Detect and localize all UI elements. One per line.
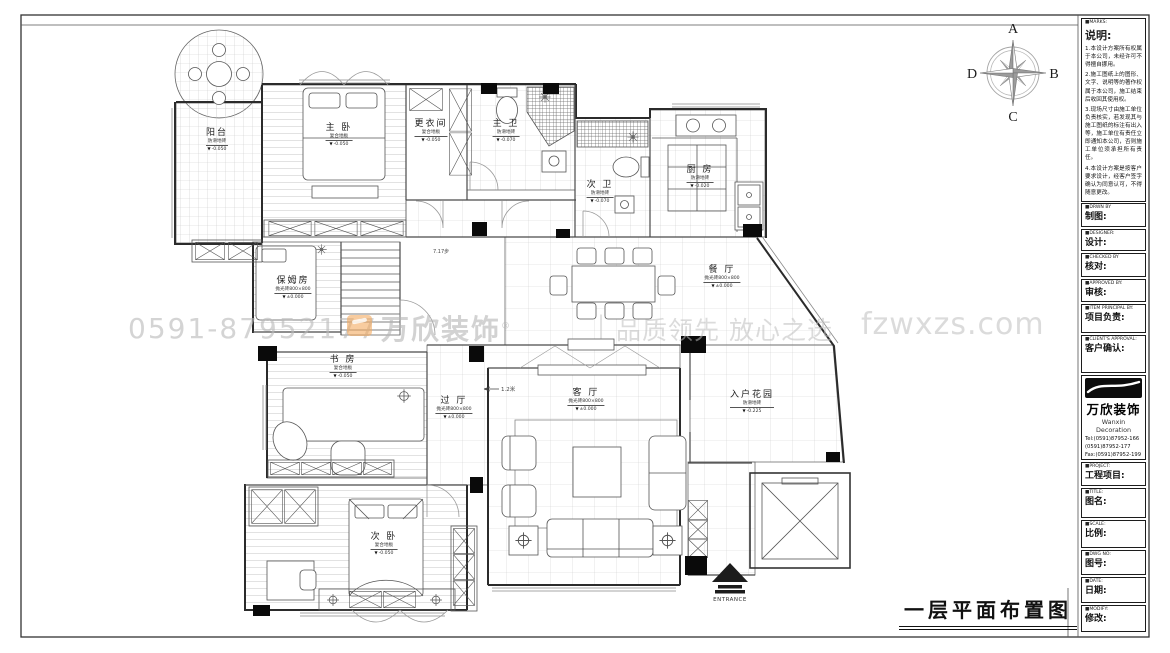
company-block: 万欣装饰 Wanxin Decoration Tel:(0591)87952-1…	[1081, 375, 1146, 460]
titleblock-principal: ■ITEM PRINCIPAL BY: 项目负责:	[1081, 304, 1146, 333]
room-label-kitchen: 厨 房 防滑地砖 ▼-0.020	[687, 165, 714, 190]
titleblock-modify: ■MODIFY: 修改:	[1081, 605, 1146, 632]
company-brand-en: Wanxin Decoration	[1085, 418, 1142, 434]
compass-letter-n: A	[1008, 22, 1019, 37]
elevator	[750, 473, 850, 568]
room-label-secondary-bath: 次 卫 防滑地砖 ▼-0.070	[587, 180, 614, 205]
titleblock-designer: ■DESIGNER: 设计:	[1081, 229, 1146, 251]
elevation-marker: ▼	[497, 137, 500, 142]
room-label-hall: 过 厅 抛光砖800×800 ▼±0.000	[435, 396, 472, 421]
company-web: Web:WWW.fzwxzs.com	[1085, 459, 1142, 460]
room-label-master-bedroom: 主 卧 复合地板 ▼-0.050	[326, 123, 353, 148]
room-label-entry-garden: 入户花园 防滑地砖 ▼-0.225	[730, 390, 774, 415]
elevation-marker: ▼	[691, 183, 694, 188]
elevation-marker: ▼	[375, 550, 378, 555]
titleblock-dwg-no: ■DWG NO: 图号:	[1081, 550, 1146, 575]
room-label-living-room: 客 厅 抛光砖800×800 ▼±0.000	[567, 388, 604, 413]
compass-star	[980, 40, 1046, 106]
company-tel2: (0591)87952-177	[1085, 444, 1142, 452]
compass-rose: A B C D	[964, 20, 1062, 126]
elevation-marker: ▼	[591, 198, 594, 203]
titleblock-marks: ■MARKS: 说明: 1.本设计方案所有权属于本公司，未经许可不得擅自挪用。 …	[1081, 18, 1146, 202]
room-label-study: 书 房 复合地板 ▼-0.050	[330, 355, 357, 380]
elevation-marker: ▼	[575, 406, 578, 411]
elevation-marker: ▼	[711, 283, 714, 288]
compass-letter-w: D	[967, 67, 977, 82]
titleblock-drawn-by: ■DRWN BY 制图:	[1081, 203, 1146, 227]
company-logo-swoosh-icon	[1085, 378, 1142, 398]
titleblock-client-approval: ■CLIENT'S APPROVAL: 客户确认:	[1081, 335, 1146, 373]
company-fax: Fax:(0591)87952-199	[1085, 452, 1142, 460]
company-brand: 万欣装饰	[1085, 399, 1142, 418]
room-label-master-bath: 主 卫 防滑地砖 ▼-0.070	[493, 119, 520, 144]
drawing-sheet: 7.17步 1.2米 ENTRANCE 阳台 防滑地砖 ▼-0.050 主 卧 …	[0, 0, 1170, 653]
elevation-marker: ▼	[422, 137, 425, 142]
room-label-nanny-room: 保姆房 抛光砖800×800 ▼±0.000	[274, 276, 311, 301]
titleblock-project: ■PROJECT: 工程项目:	[1081, 462, 1146, 486]
titleblock-approved-by: ■APPROVED BY: 审核:	[1081, 279, 1146, 302]
company-tel1: Tel:(0591)87952-166	[1085, 436, 1142, 444]
room-label-dining: 餐 厅 抛光砖800×800 ▼±0.000	[703, 265, 740, 290]
dim-note: 1.2米	[501, 385, 516, 393]
compass-letter-s: C	[1008, 110, 1017, 125]
entrance-label: ENTRANCE	[713, 597, 747, 603]
elevation-marker: ▼	[443, 414, 446, 419]
elevation-marker: ▼	[330, 141, 333, 146]
elevation-marker: ▼	[743, 408, 746, 413]
stair-note: 7.17步	[433, 249, 449, 255]
room-label-balcony: 阳台 防滑地砖 ▼-0.050	[206, 128, 228, 153]
compass-letter-e: B	[1049, 67, 1058, 82]
drawing-title: 一层平面布置图	[899, 594, 1077, 630]
elevation-marker: ▼	[208, 146, 211, 151]
titleblock-title: ■TITLE: 图名:	[1081, 488, 1146, 518]
room-label-bedroom2: 次 卧 复合地板 ▼-0.050	[371, 532, 398, 557]
room-label-dressing-room: 更衣间 复合地板 ▼-0.050	[414, 119, 447, 144]
titleblock-date: ■DATE: 日期:	[1081, 577, 1146, 603]
titleblock-checked-by: ■CHECKED BY 核对:	[1081, 253, 1146, 277]
elevation-marker: ▼	[282, 294, 285, 299]
elevation-marker: ▼	[334, 373, 337, 378]
titleblock-scale: ■SCALE: 比例:	[1081, 520, 1146, 548]
